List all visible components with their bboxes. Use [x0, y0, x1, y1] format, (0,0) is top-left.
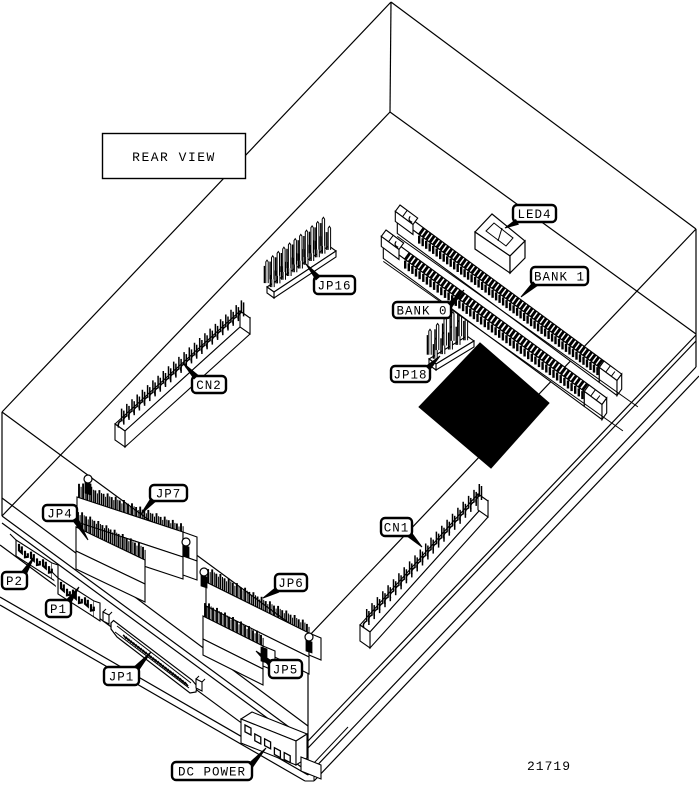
- svg-text:JP18: JP18: [393, 369, 427, 383]
- svg-text:DC POWER: DC POWER: [178, 766, 246, 780]
- svg-text:21719: 21719: [527, 759, 571, 774]
- svg-text:P2: P2: [6, 575, 23, 589]
- svg-text:JP5: JP5: [273, 664, 299, 678]
- svg-text:JP6: JP6: [278, 577, 304, 591]
- svg-text:JP1: JP1: [109, 671, 135, 685]
- svg-text:JP16: JP16: [317, 280, 351, 294]
- svg-text:REAR VIEW: REAR VIEW: [132, 150, 216, 165]
- svg-text:CN2: CN2: [196, 379, 222, 393]
- svg-text:P1: P1: [50, 603, 67, 617]
- svg-text:LED4: LED4: [517, 208, 551, 222]
- svg-text:BANK 0: BANK 0: [396, 305, 447, 319]
- svg-text:JP4: JP4: [47, 508, 73, 522]
- svg-text:CN1: CN1: [384, 522, 410, 536]
- svg-text:JP7: JP7: [156, 488, 182, 502]
- svg-text:BANK 1: BANK 1: [534, 271, 585, 285]
